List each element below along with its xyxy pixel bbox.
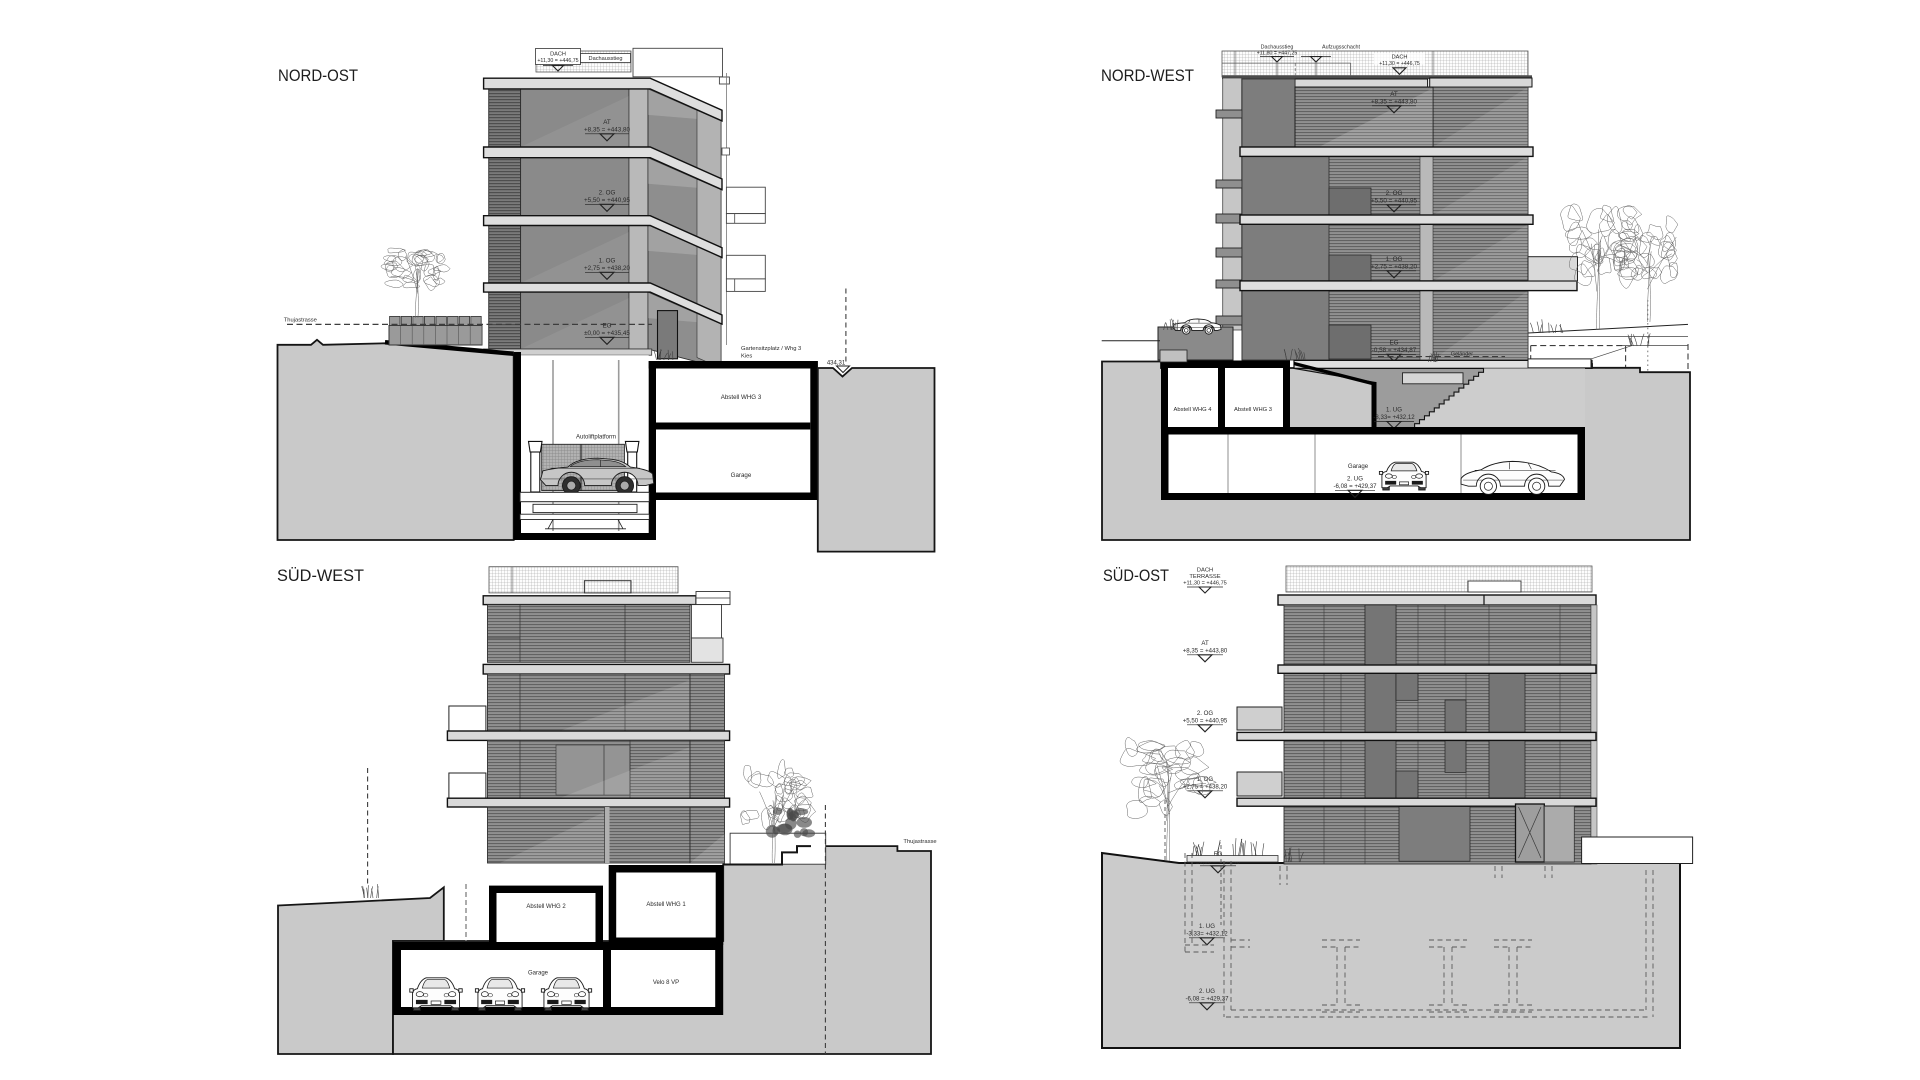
svg-text:2. UG: 2. UG xyxy=(1199,988,1215,995)
svg-text:+5,50 = +440,95: +5,50 = +440,95 xyxy=(1371,198,1418,205)
svg-text:EG: EG xyxy=(1389,340,1398,347)
svg-text:DACH: DACH xyxy=(1197,568,1213,574)
svg-text:+8,35 = +443,80: +8,35 = +443,80 xyxy=(584,127,631,134)
svg-text:2. OG: 2. OG xyxy=(1386,190,1403,197)
svg-text:+11,30 = +446,75: +11,30 = +446,75 xyxy=(1183,581,1227,587)
svg-text:Abstell WHG 1: Abstell WHG 1 xyxy=(646,902,686,908)
svg-text:AT: AT xyxy=(1390,91,1398,98)
svg-text:1. UG: 1. UG xyxy=(1199,923,1215,930)
svg-text:+11,30 = +446,75: +11,30 = +446,75 xyxy=(537,58,578,64)
svg-text:SÜD-OST: SÜD-OST xyxy=(1103,567,1169,585)
svg-text:NORD-OST: NORD-OST xyxy=(278,67,358,85)
svg-text:AT: AT xyxy=(1201,640,1209,647)
svg-text:2. OG: 2. OG xyxy=(1197,710,1214,717)
svg-text:1. UG: 1. UG xyxy=(1386,407,1402,414)
svg-text:2. UG: 2. UG xyxy=(1347,476,1363,483)
svg-text:+8,35 = +443,80: +8,35 = +443,80 xyxy=(1371,99,1418,106)
svg-text:-3,33= +432,12: -3,33= +432,12 xyxy=(1373,414,1415,421)
svg-text:Gartensitzplatz / Whg 3: Gartensitzplatz / Whg 3 xyxy=(741,346,801,352)
svg-text:±0,00 = +435,45: ±0,00 = +435,45 xyxy=(584,330,630,337)
svg-text:DACH: DACH xyxy=(550,52,566,58)
svg-text:DACH: DACH xyxy=(1392,55,1408,61)
svg-text:Aufzugsschacht: Aufzugsschacht xyxy=(1322,45,1361,51)
svg-text:Garage: Garage xyxy=(731,472,752,479)
svg-text:Abstell WHG 4: Abstell WHG 4 xyxy=(1173,407,1212,413)
svg-text:-3,33= +432,12: -3,33= +432,12 xyxy=(1186,931,1228,938)
svg-text:TERRASSE: TERRASSE xyxy=(1189,574,1220,580)
svg-text:+5,50 = +440,95: +5,50 = +440,95 xyxy=(584,197,631,204)
svg-text:-0,58 = +434,87: -0,58 = +434,87 xyxy=(1372,347,1417,354)
svg-text:+11,80 = +447,25: +11,80 = +447,25 xyxy=(1257,51,1298,57)
svg-text:Abstell WHG 3: Abstell WHG 3 xyxy=(721,394,762,401)
svg-text:+2,75 = +438,20: +2,75 = +438,20 xyxy=(584,265,631,272)
svg-text:2. OG: 2. OG xyxy=(599,190,616,197)
svg-text:Autoliftplatform: Autoliftplatform xyxy=(576,435,616,441)
svg-text:+8,35 = +443,80: +8,35 = +443,80 xyxy=(1183,648,1228,655)
svg-text:Thujastrasse: Thujastrasse xyxy=(284,318,317,324)
svg-text:+2,75 = +438,20: +2,75 = +438,20 xyxy=(1371,264,1418,271)
svg-text:+11,30 = +446,75: +11,30 = +446,75 xyxy=(1379,61,1420,67)
svg-text:-6,08 = +429,37: -6,08 = +429,37 xyxy=(1333,483,1377,490)
svg-text:Garage: Garage xyxy=(1348,463,1369,470)
svg-text:Dachausstieg: Dachausstieg xyxy=(589,56,623,62)
svg-text:Velo 8 VP: Velo 8 VP xyxy=(653,980,679,986)
svg-text:Garage: Garage xyxy=(528,971,549,977)
svg-text:1. OG: 1. OG xyxy=(1386,256,1403,263)
svg-text:AT: AT xyxy=(603,119,611,126)
svg-text:+5,50 = +440,95: +5,50 = +440,95 xyxy=(1183,718,1228,725)
svg-text:-6,08 = +429,37: -6,08 = +429,37 xyxy=(1185,996,1229,1003)
svg-text:EG: EG xyxy=(602,323,611,330)
svg-text:Abstell WHG 3: Abstell WHG 3 xyxy=(1234,407,1272,413)
svg-text:+2,75 = +438,20: +2,75 = +438,20 xyxy=(1183,784,1228,791)
svg-text:SÜD-WEST: SÜD-WEST xyxy=(277,567,364,585)
svg-text:1. OG: 1. OG xyxy=(599,258,616,265)
svg-text:NORD-WEST: NORD-WEST xyxy=(1101,67,1194,85)
svg-text:Thujastrasse: Thujastrasse xyxy=(903,839,936,845)
svg-text:Abstell WHG 2: Abstell WHG 2 xyxy=(526,904,566,910)
svg-text:Kies: Kies xyxy=(741,354,752,360)
